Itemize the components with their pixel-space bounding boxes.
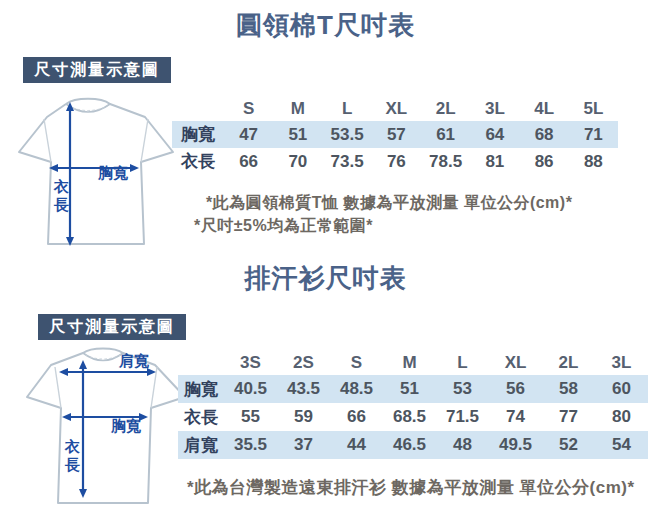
size-column-header: XL (489, 351, 542, 375)
wicking-size-header-row: 3S 2S S M L XL 2L 3L (178, 351, 648, 375)
size-value: 73.5 (323, 148, 372, 175)
wicking-body-length-row: 衣長 55 59 66 68.5 71.5 74 77 80 (178, 403, 648, 431)
size-value: 74 (489, 403, 542, 431)
body-length-label-char-1: 衣 (64, 438, 80, 455)
size-column-header: 3L (595, 351, 648, 375)
cotton-tolerance-note: *尺吋±5%均為正常範圍* (194, 216, 373, 237)
size-value: 48 (436, 431, 489, 459)
row-label: 衣長 (178, 403, 224, 431)
wicking-measure-diagram-badge: 尺寸測量示意圖 (38, 314, 186, 340)
size-column-header: 2L (421, 97, 470, 121)
size-column-header: XL (372, 97, 421, 121)
size-value: 61 (421, 121, 470, 148)
size-value: 78.5 (421, 148, 470, 175)
size-value: 53.5 (323, 121, 372, 148)
size-value: 55 (224, 403, 277, 431)
row-label: 衣長 (172, 148, 224, 175)
wicking-shirt-diagram: 肩寬 胸寬 衣長 (15, 345, 197, 513)
row-label: 胸寬 (178, 375, 224, 403)
cotton-shirt-diagram: 胸寬 衣長 (8, 94, 180, 264)
row-label: 肩寬 (178, 431, 224, 459)
size-value: 46.5 (383, 431, 436, 459)
cotton-measurement-note: *此為圓領棉質T恤 數據為平放測量 單位公分(cm)* (206, 193, 572, 214)
size-value: 71 (569, 121, 618, 148)
corner-cell (178, 351, 224, 375)
size-value: 64 (470, 121, 519, 148)
size-value: 43.5 (277, 375, 330, 403)
wicking-chart-title: 排汗衫尺吋表 (0, 261, 651, 296)
size-value: 51 (273, 121, 322, 148)
chest-width-label: 胸寬 (97, 164, 128, 181)
size-value: 51 (383, 375, 436, 403)
size-chart-page: 圓領棉T尺吋表 尺寸測量示意圖 胸寬 衣長 S M L XL (0, 0, 651, 514)
size-value: 57 (372, 121, 421, 148)
cotton-chest-width-row: 胸寬 47 51 53.5 57 61 64 68 71 (172, 121, 618, 148)
size-column-header: S (330, 351, 383, 375)
size-value: 68.5 (383, 403, 436, 431)
wicking-shoulder-width-row: 肩寬 35.5 37 44 46.5 48 49.5 52 54 (178, 431, 648, 459)
size-column-header: S (224, 97, 273, 121)
size-value: 88 (569, 148, 618, 175)
size-column-header: M (383, 351, 436, 375)
wicking-size-table: 3S 2S S M L XL 2L 3L 胸寬 40.5 43.5 48.5 5… (178, 351, 648, 459)
wicking-chest-width-row: 胸寬 40.5 43.5 48.5 51 53 56 58 60 (178, 375, 648, 403)
wicking-measurement-note: *此為台灣製造遠東排汗衫 數據為平放測量 單位公分(cm)* (187, 476, 635, 499)
cotton-size-header-row: S M L XL 2L 3L 4L 5L (172, 97, 618, 121)
size-column-header: M (273, 97, 322, 121)
cotton-size-table: S M L XL 2L 3L 4L 5L 胸寬 47 51 53.5 57 61… (172, 97, 618, 175)
size-value: 59 (277, 403, 330, 431)
size-value: 37 (277, 431, 330, 459)
size-value: 76 (372, 148, 421, 175)
size-value: 58 (542, 375, 595, 403)
tshirt-outline (19, 99, 173, 244)
chest-width-label: 胸寬 (110, 417, 141, 434)
cotton-chart-title: 圓領棉T尺吋表 (0, 8, 651, 43)
row-label: 胸寬 (172, 121, 224, 148)
body-length-label-char-2: 長 (64, 456, 80, 473)
size-column-header: L (323, 97, 372, 121)
size-column-header: 3S (224, 351, 277, 375)
size-value: 68 (520, 121, 569, 148)
size-value: 54 (595, 431, 648, 459)
size-column-header: 2S (277, 351, 330, 375)
body-length-label-char-1: 衣 (53, 178, 69, 195)
size-value: 66 (330, 403, 383, 431)
size-column-header: L (436, 351, 489, 375)
size-value: 70 (273, 148, 322, 175)
size-value: 66 (224, 148, 273, 175)
size-value: 56 (489, 375, 542, 403)
size-value: 47 (224, 121, 273, 148)
size-value: 71.5 (436, 403, 489, 431)
body-length-label-char-2: 長 (53, 196, 69, 213)
size-column-header: 4L (520, 97, 569, 121)
size-value: 77 (542, 403, 595, 431)
size-value: 35.5 (224, 431, 277, 459)
size-column-header: 3L (470, 97, 519, 121)
cotton-measure-diagram-badge: 尺寸測量示意圖 (23, 57, 171, 83)
shoulder-width-label: 肩寬 (118, 352, 149, 369)
size-value: 48.5 (330, 375, 383, 403)
body-length-label: 衣長 (53, 178, 69, 213)
size-value: 81 (470, 148, 519, 175)
size-column-header: 5L (569, 97, 618, 121)
cotton-body-length-row: 衣長 66 70 73.5 76 78.5 81 86 88 (172, 148, 618, 175)
size-value: 44 (330, 431, 383, 459)
size-value: 52 (542, 431, 595, 459)
size-value: 80 (595, 403, 648, 431)
size-value: 40.5 (224, 375, 277, 403)
size-value: 49.5 (489, 431, 542, 459)
size-value: 53 (436, 375, 489, 403)
corner-cell (172, 97, 224, 121)
size-column-header: 2L (542, 351, 595, 375)
size-value: 60 (595, 375, 648, 403)
size-value: 86 (520, 148, 569, 175)
body-length-label: 衣長 (64, 438, 80, 473)
